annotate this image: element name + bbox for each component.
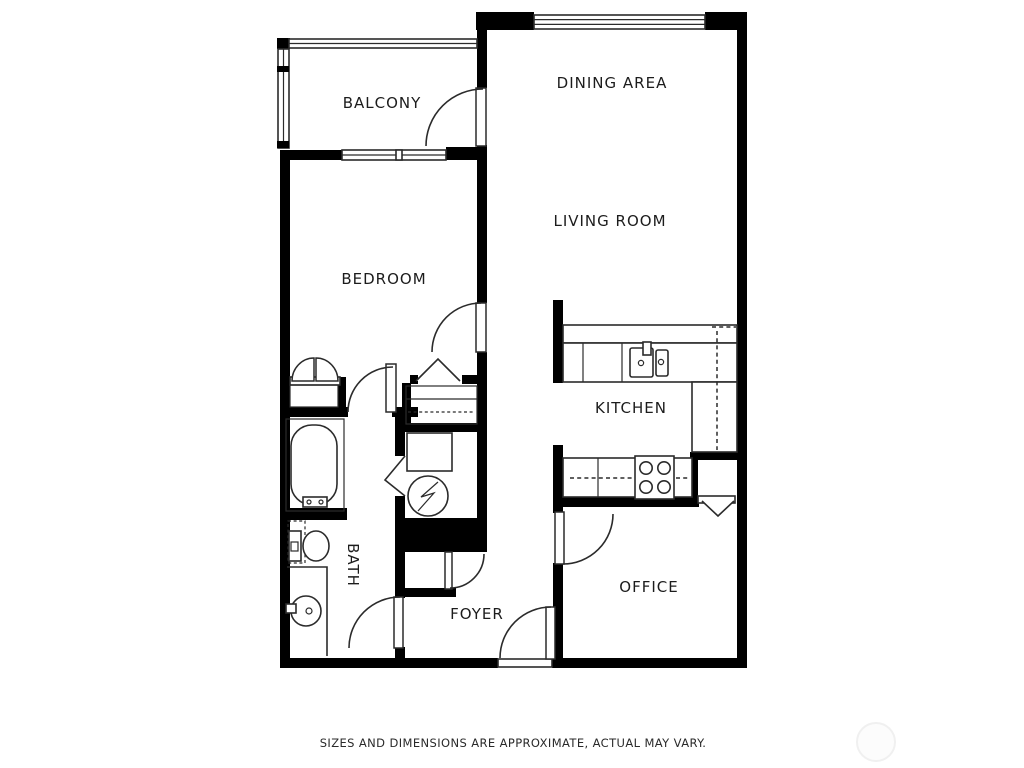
pantry-door bbox=[698, 496, 735, 516]
bedroom-window bbox=[342, 150, 446, 160]
toilet bbox=[288, 521, 329, 563]
floor-plan-drawing: BALCONY DINING AREA LIVING ROOM BEDROOM … bbox=[0, 0, 1024, 768]
bedroom-hall-door bbox=[348, 364, 396, 412]
stove bbox=[635, 456, 674, 499]
hvac-unit bbox=[407, 433, 452, 471]
hall-closet bbox=[406, 386, 477, 424]
floor-plan-page: BALCONY DINING AREA LIVING ROOM BEDROOM … bbox=[0, 0, 1024, 768]
water-heater bbox=[408, 476, 448, 516]
balcony-label: BALCONY bbox=[343, 94, 422, 112]
hall-closet-door-chevron bbox=[416, 359, 460, 381]
bedroom-door bbox=[432, 303, 486, 352]
living-label: LIVING ROOM bbox=[553, 212, 666, 230]
dining-label: DINING AREA bbox=[557, 74, 668, 92]
utility-closet-door-chevron bbox=[385, 456, 405, 496]
vanity-sink bbox=[286, 567, 327, 656]
breakfast-bar bbox=[563, 325, 737, 343]
bedroom-label: BEDROOM bbox=[341, 270, 426, 288]
bedroom-closet-bifold-doors bbox=[290, 358, 340, 407]
kitchen-label: KITCHEN bbox=[595, 399, 667, 417]
dining-window bbox=[534, 15, 705, 29]
bath-door bbox=[349, 597, 403, 648]
disclaimer-text: SIZES AND DIMENSIONS ARE APPROXIMATE, AC… bbox=[320, 736, 707, 750]
office-door bbox=[555, 512, 613, 564]
bath-label: BATH bbox=[344, 543, 362, 587]
entry-door bbox=[498, 607, 555, 667]
foyer-label: FOYER bbox=[450, 605, 504, 623]
watermark-circle bbox=[857, 723, 895, 761]
foyer-closet-door bbox=[445, 552, 484, 589]
balcony-door bbox=[426, 88, 486, 146]
utility-closet bbox=[407, 433, 452, 516]
bathtub bbox=[286, 419, 344, 511]
office-label: OFFICE bbox=[619, 578, 678, 596]
